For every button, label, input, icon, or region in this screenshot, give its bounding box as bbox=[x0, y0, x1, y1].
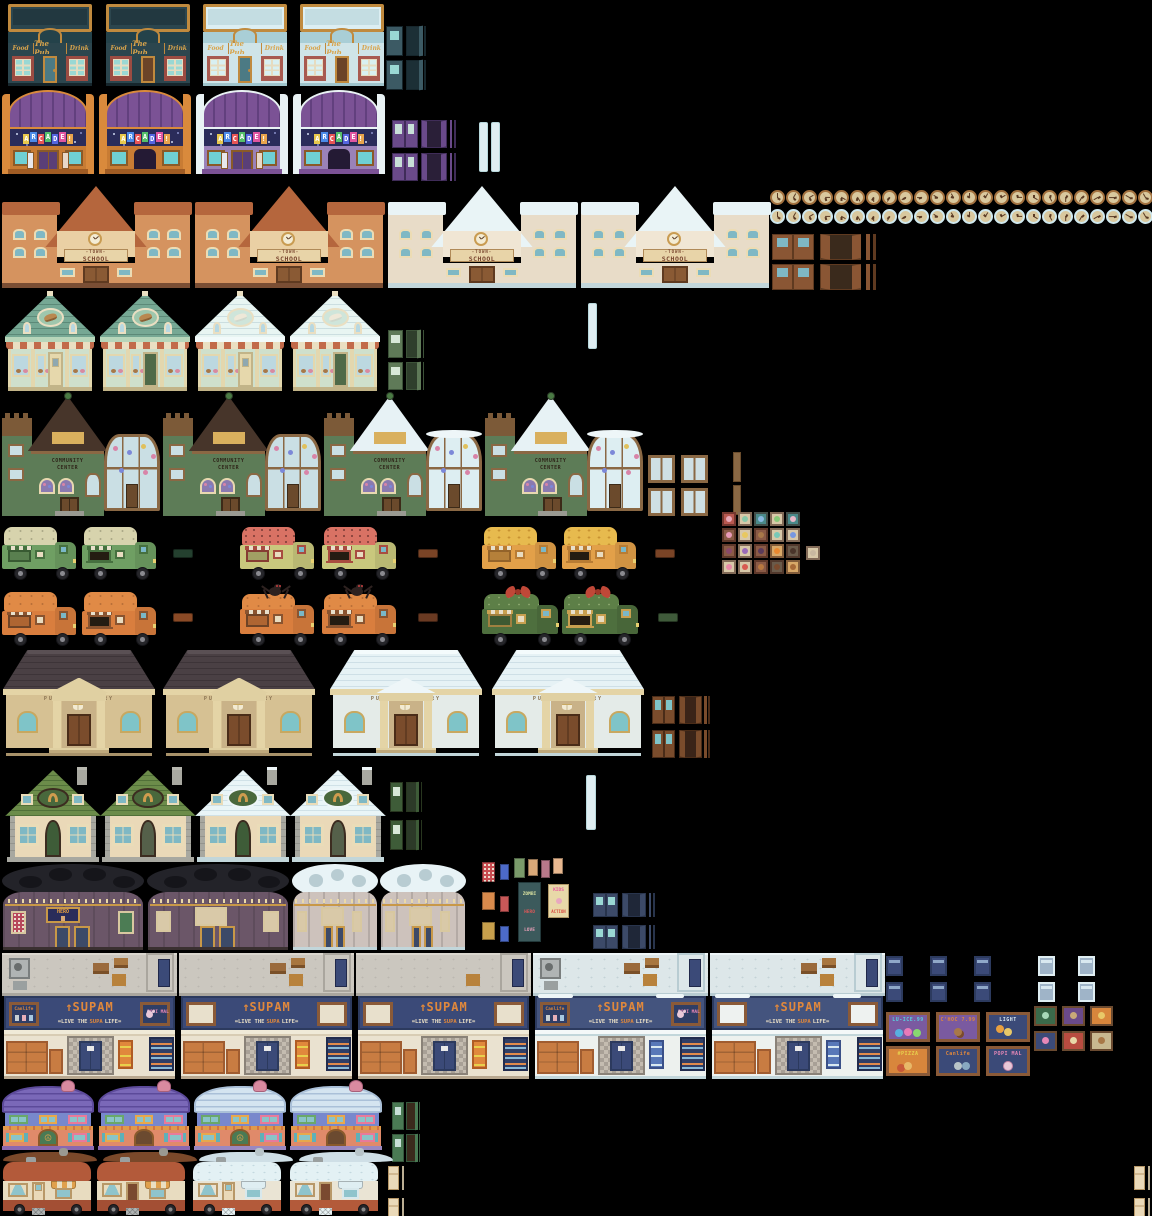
pub-sign-drink: Drink bbox=[164, 43, 190, 54]
slogan-pre: =LIVE THE bbox=[412, 1019, 442, 1025]
bakery-display-window bbox=[165, 354, 183, 378]
sliver-bar-sprite bbox=[733, 452, 741, 482]
bakery-display-window bbox=[12, 354, 30, 378]
door-closed bbox=[386, 60, 403, 90]
arcade-sign-text: ARCADE! bbox=[107, 132, 182, 144]
caravan-wheel bbox=[71, 1204, 82, 1215]
library-column bbox=[542, 701, 550, 748]
cc-greenhouse-door bbox=[609, 484, 621, 508]
bakery-pastries bbox=[111, 369, 116, 373]
cinema-door bbox=[324, 926, 333, 949]
doorset-bakery-sprite bbox=[388, 330, 424, 358]
clock-hour-hand bbox=[1146, 216, 1149, 218]
library-entablature bbox=[212, 693, 267, 700]
school-wing-window bbox=[553, 247, 566, 258]
truck-headlight bbox=[311, 559, 314, 563]
caravan-window bbox=[55, 1188, 72, 1199]
ranch-horseshoe-plaque bbox=[322, 788, 353, 808]
cc-tall-window bbox=[246, 473, 262, 497]
supam-autumn-sprite: ↑SUPAM=LIVE THESUPALIFE= bbox=[356, 953, 531, 1079]
clock-animation-frame bbox=[1074, 209, 1089, 224]
door-open bbox=[406, 782, 419, 812]
bakery-column bbox=[89, 349, 93, 387]
cc-sign-text: COMMUNITYCENTER bbox=[32, 456, 102, 473]
supam-crate bbox=[49, 1049, 63, 1074]
truck-bow-open-sprite bbox=[562, 586, 640, 646]
adposter-sprite: Canlife bbox=[936, 1046, 980, 1076]
school-wing-roof bbox=[520, 202, 578, 214]
clock-animation-frame bbox=[1138, 190, 1152, 205]
ad-poster-icon bbox=[1004, 1028, 1012, 1036]
sliver-snow-sprite bbox=[588, 303, 597, 349]
clock-animation-frame bbox=[786, 209, 801, 224]
cc-snow-cap bbox=[587, 430, 643, 438]
truck-spider-sprite bbox=[240, 586, 315, 646]
poster-text-action: ACTION bbox=[551, 909, 565, 914]
caravan-wheel bbox=[108, 1204, 119, 1215]
hippie-roof-dome bbox=[157, 1080, 171, 1092]
truck-rooftop bbox=[484, 527, 537, 546]
supam-sliding-door bbox=[610, 1041, 633, 1071]
cinema-door bbox=[200, 926, 216, 949]
truck-rooftop bbox=[84, 527, 137, 546]
cinema-empty-frame bbox=[297, 911, 306, 932]
door-sliver bbox=[1148, 1166, 1150, 1190]
cinema-base bbox=[381, 947, 465, 950]
caravan-window-curtains bbox=[8, 1183, 27, 1197]
arcade-letter: A bbox=[314, 134, 320, 144]
truck-headlight bbox=[636, 623, 639, 627]
movie-poster-kids-action: KIDSACTION bbox=[548, 884, 569, 918]
doorset-hippie-sprite bbox=[392, 1102, 420, 1130]
caravan-roof bbox=[193, 1162, 281, 1181]
door-pane bbox=[596, 929, 602, 937]
film-reel-hole bbox=[397, 874, 411, 886]
door-sprite bbox=[1134, 1166, 1145, 1190]
door-open bbox=[406, 820, 419, 850]
clock-animation-frame bbox=[866, 190, 881, 205]
hippie-shutter bbox=[120, 1133, 124, 1143]
arcade-base bbox=[202, 169, 281, 174]
cc-window-flowers bbox=[62, 483, 65, 486]
food-icon bbox=[758, 548, 764, 554]
double-door-open bbox=[622, 893, 647, 917]
truck-cab-window bbox=[539, 545, 548, 554]
cc-window-flowers bbox=[204, 483, 207, 486]
open-door-leaf bbox=[852, 264, 861, 289]
window-pane bbox=[47, 1117, 49, 1123]
cc-greenhouse bbox=[587, 434, 643, 511]
clock-animation-frame bbox=[802, 190, 817, 205]
pub-roof-panel bbox=[208, 9, 282, 25]
arcade-sign-panel: ARCADE! bbox=[10, 129, 85, 147]
truck-cab-window bbox=[619, 545, 628, 554]
cc-tower-brick bbox=[2, 418, 32, 436]
clock-animation-frame bbox=[882, 209, 897, 224]
school-lower-window bbox=[446, 268, 461, 277]
bakery-column bbox=[126, 349, 130, 387]
school-sign: -TOWN-SCHOOL bbox=[643, 249, 707, 262]
hippie-lower-window bbox=[201, 1133, 216, 1143]
school-wing bbox=[2, 213, 57, 283]
food-tile-berry-dark bbox=[754, 544, 768, 558]
pub-roof-panel bbox=[305, 9, 379, 25]
arcade-pillar-right bbox=[183, 94, 191, 174]
truck-wheel bbox=[334, 633, 347, 646]
double-door-closed bbox=[652, 730, 675, 758]
cinema-door bbox=[55, 926, 71, 949]
ranch-chimney bbox=[362, 767, 372, 785]
supam-vending-machines bbox=[857, 1037, 882, 1071]
window-pane bbox=[114, 1117, 116, 1123]
cinema-autumn-open-sprite: HERO bbox=[2, 864, 144, 950]
cinema-autumn-sprite bbox=[147, 864, 289, 950]
door-sprite bbox=[1134, 1198, 1145, 1216]
cc-gable bbox=[213, 432, 245, 444]
caravan-window-curtains bbox=[198, 1183, 217, 1197]
ranch-base bbox=[102, 857, 194, 862]
bakery-winter-sprite bbox=[195, 293, 285, 391]
supam-slogan: =LIVE THESUPALIFE= bbox=[745, 1016, 850, 1027]
cinema-empty-frame bbox=[409, 907, 431, 926]
school-wing-roof bbox=[713, 202, 771, 214]
clock-animation-frame bbox=[834, 209, 849, 224]
supam-poster-popimal bbox=[848, 1002, 878, 1026]
doorset-caravan-sprite bbox=[388, 1166, 404, 1190]
arcade-pillar-right bbox=[280, 94, 288, 174]
cc-window-sprite bbox=[648, 455, 675, 483]
supam-base bbox=[358, 1076, 530, 1079]
supam-window-sprite bbox=[930, 956, 947, 976]
clock-hour-hand bbox=[841, 217, 843, 220]
double-door-closed bbox=[392, 120, 418, 148]
caravan-autumn-open-sprite bbox=[97, 1162, 185, 1215]
arcade-autumn-open-sprite: ARCADE! bbox=[99, 90, 191, 174]
arcade-sign-panel: ARCADE! bbox=[301, 129, 376, 147]
door-pane bbox=[408, 124, 415, 134]
supam-poster-canlife bbox=[186, 1002, 216, 1026]
door-sliver bbox=[423, 362, 424, 390]
pub-brick-bay bbox=[207, 56, 229, 81]
bakery-awning bbox=[196, 342, 284, 349]
cc-greenhouse bbox=[426, 434, 482, 511]
library-ridge bbox=[516, 650, 619, 654]
food-tile-candy-cane bbox=[738, 560, 752, 574]
caravan-door-window bbox=[225, 1184, 232, 1190]
food-icon bbox=[774, 516, 780, 522]
supam-crate-stack bbox=[714, 1041, 756, 1074]
school-lower-window bbox=[253, 268, 268, 277]
library-open-book-emblem bbox=[233, 704, 243, 710]
window-pane bbox=[335, 1117, 337, 1123]
ranch-chimney bbox=[172, 767, 182, 785]
bakery-finial bbox=[142, 291, 147, 296]
clock-animation-frame bbox=[930, 190, 945, 205]
door-sliver bbox=[653, 893, 655, 917]
door-pane bbox=[393, 787, 400, 797]
door-pane bbox=[777, 238, 788, 247]
seasonal-divider-bar bbox=[658, 613, 678, 622]
school-wing-window bbox=[227, 247, 240, 258]
hippie-door: ☮ bbox=[230, 1129, 250, 1146]
door-pane bbox=[596, 897, 602, 905]
bakery-gable-window bbox=[164, 322, 172, 334]
school-wing bbox=[135, 213, 190, 283]
door-split bbox=[605, 926, 607, 948]
mound-rock bbox=[255, 1148, 264, 1156]
open-door-leaf bbox=[416, 782, 419, 813]
supam-crate-stack bbox=[6, 1041, 48, 1074]
supam-base bbox=[712, 1076, 884, 1079]
food-icon bbox=[742, 516, 748, 522]
miniposters-sprite bbox=[1034, 1006, 1114, 1052]
canlife-text: Canlife bbox=[12, 1006, 36, 1014]
dirt-mound bbox=[3, 1152, 97, 1162]
food-tile-pudding bbox=[770, 560, 784, 574]
clock-animation-frame bbox=[1122, 209, 1137, 224]
clock-animation-frame bbox=[1106, 209, 1121, 224]
ranch-winter-sprite bbox=[197, 762, 289, 862]
door-split bbox=[605, 894, 607, 916]
ranch-door bbox=[235, 820, 252, 857]
school-winter-sprite: -TOWN-SCHOOL bbox=[388, 186, 576, 288]
door-sliver bbox=[704, 696, 706, 724]
bakery-autumn-sprite bbox=[5, 293, 95, 391]
pub-sign-food: Food bbox=[106, 43, 131, 54]
ranch-corner-stones bbox=[281, 816, 287, 857]
truck-wheel bbox=[294, 567, 307, 580]
pub-winter-open-sprite: FoodThe PubDrink bbox=[300, 4, 384, 86]
doorset-library-sprite bbox=[652, 696, 710, 724]
supam-arrow-icon: ↑ bbox=[773, 1000, 780, 1014]
clock-animation-frame bbox=[978, 209, 993, 224]
open-door-leaf bbox=[416, 820, 419, 851]
truck-wheel bbox=[574, 633, 587, 646]
window-pane bbox=[365, 1117, 367, 1123]
cinema-trim bbox=[382, 904, 465, 906]
caravan-winter-open-sprite bbox=[290, 1162, 378, 1215]
adposter-sprite: LU-ICE.99 bbox=[886, 1012, 930, 1042]
movie-poster-popcorn bbox=[482, 862, 495, 882]
posterset-sprite: ZOMBIHEROLOVEKIDSACTION bbox=[482, 856, 582, 948]
movie-poster-burger bbox=[482, 922, 495, 940]
school-wing-window bbox=[13, 247, 26, 258]
cc-greenhouse-door bbox=[287, 484, 299, 508]
window-pane bbox=[889, 986, 899, 989]
pub-window bbox=[70, 60, 83, 74]
food-tile-pretzel bbox=[786, 560, 800, 574]
hippie-lower-window bbox=[168, 1133, 183, 1143]
truck-melon-open-sprite bbox=[322, 524, 397, 580]
pub-brick-bay bbox=[164, 56, 186, 81]
arcade-base bbox=[299, 169, 378, 174]
supam-roof-crate bbox=[643, 974, 657, 985]
door-sliver bbox=[424, 26, 426, 56]
truck-headlight bbox=[153, 559, 156, 563]
supam-stair-door bbox=[512, 959, 523, 987]
ad-poster-text: POPI MAL bbox=[989, 1050, 1027, 1059]
pub-door bbox=[335, 56, 348, 82]
cc-greenhouse-flowers bbox=[113, 446, 118, 451]
door-pane bbox=[408, 157, 415, 167]
bakery-pastries bbox=[38, 369, 43, 373]
doorset-bakery-sprite bbox=[388, 362, 424, 390]
library-window bbox=[177, 711, 198, 732]
cc-tower-window bbox=[330, 444, 346, 457]
truck-cab-window bbox=[541, 609, 550, 619]
supam-ac-duct bbox=[13, 981, 27, 990]
door-sliver bbox=[454, 153, 456, 181]
pub-base bbox=[203, 83, 287, 86]
mini-ad-poster bbox=[1034, 1006, 1057, 1026]
food-tile-cinnamon-roll bbox=[754, 560, 768, 574]
door-pane bbox=[608, 897, 614, 905]
door-closed bbox=[392, 1102, 404, 1130]
poster-text-zombi: ZOMBI bbox=[523, 892, 537, 897]
bakery-column bbox=[31, 349, 35, 387]
door-sliver bbox=[873, 234, 876, 260]
clock-animation-frame bbox=[898, 209, 913, 224]
open-door-leaf bbox=[640, 926, 645, 949]
school-sign-top: -TOWN- bbox=[472, 249, 492, 254]
clock-animation-frame bbox=[770, 190, 785, 205]
cc-arched-window bbox=[522, 478, 538, 495]
supam-crate bbox=[226, 1049, 240, 1074]
truck-cab-window bbox=[59, 545, 68, 554]
truck-rooftop bbox=[564, 527, 617, 546]
ranch-window bbox=[67, 824, 89, 846]
library-open-book-emblem bbox=[400, 704, 410, 710]
door-pane bbox=[655, 734, 661, 744]
school-wing-window bbox=[533, 247, 546, 258]
food-icon bbox=[790, 564, 796, 570]
bakery-logo-oval bbox=[37, 308, 64, 328]
adposter-sprite: C'HOC 7.99 bbox=[936, 1012, 980, 1042]
door-sliver bbox=[421, 820, 422, 850]
mini-ad-poster bbox=[1062, 1031, 1085, 1051]
sprite-sheet-canvas: FoodThe PubDrinkFoodThe PubDrinkFoodThe … bbox=[0, 0, 1152, 1216]
supam-slogan: =LIVE THESUPALIFE= bbox=[214, 1016, 319, 1027]
snow-cap bbox=[715, 994, 750, 998]
school-wing-window bbox=[746, 229, 759, 240]
open-door-leaf bbox=[419, 25, 423, 56]
slogan-pre: =LIVE THE bbox=[589, 1019, 619, 1025]
truck-spider-decoration bbox=[263, 584, 287, 598]
open-door-leaf bbox=[422, 121, 427, 148]
truck-menu-board bbox=[595, 550, 605, 560]
pub-sign-band: FoodThe PubDrink bbox=[300, 43, 384, 54]
clock-animation-frame bbox=[1122, 190, 1137, 205]
arcade-letter: D bbox=[149, 134, 155, 144]
slogan-pre: =LIVE THE bbox=[766, 1019, 796, 1025]
seasonal-divider-bar bbox=[418, 549, 438, 558]
school-wing-roof bbox=[327, 202, 385, 214]
food-tile-egg-blue bbox=[754, 512, 768, 526]
truck-wheel bbox=[494, 567, 507, 580]
library-ridge bbox=[187, 650, 290, 654]
door-sliver bbox=[649, 893, 651, 917]
mini-ad-icon bbox=[1042, 1037, 1049, 1044]
hippie-upper-window bbox=[9, 1115, 27, 1125]
bakery-gable-window bbox=[259, 322, 267, 334]
cinema-poster-popcorn bbox=[11, 911, 27, 933]
truck-green-sprite bbox=[2, 524, 77, 580]
slogan-supa: SUPA bbox=[621, 1019, 634, 1025]
film-reel-hole bbox=[352, 875, 366, 887]
clock-hour-hand bbox=[1065, 214, 1068, 217]
food-icon bbox=[774, 564, 780, 570]
supam-ac-duct bbox=[544, 981, 558, 990]
pub-sign-thepub: The Pub bbox=[228, 43, 261, 54]
supam-name-text: SUPAM bbox=[427, 1000, 468, 1014]
door-sliver bbox=[873, 264, 876, 290]
supam-sale-poster bbox=[649, 1040, 665, 1069]
hippie-door: ☮ bbox=[38, 1129, 58, 1146]
snow-cap bbox=[538, 994, 573, 998]
school-wing-window bbox=[746, 247, 759, 258]
supam-arrow-icon: ↑ bbox=[242, 1000, 249, 1014]
truck-wheel bbox=[136, 567, 149, 580]
door-closed bbox=[388, 330, 403, 358]
windowset-cc-sprite bbox=[648, 488, 708, 516]
pub-winter-sprite: FoodThe PubDrink bbox=[203, 4, 287, 86]
supam-window-sprite-snow bbox=[1038, 982, 1055, 1002]
snow-door-sliver bbox=[491, 122, 500, 172]
clock-animation-frame bbox=[898, 190, 913, 205]
truck-serving-window-closed bbox=[488, 614, 511, 627]
school-wing-window bbox=[726, 247, 739, 258]
clock-animation-frame bbox=[1010, 209, 1025, 224]
truck-wheel bbox=[538, 633, 551, 646]
pub-brick-bay bbox=[261, 56, 283, 81]
clock-animation-frame bbox=[818, 190, 833, 205]
cc-arched-window bbox=[541, 478, 557, 495]
cc-arched-window bbox=[39, 478, 55, 495]
clock-animation-frame bbox=[962, 190, 977, 205]
school-wing-window bbox=[34, 229, 47, 240]
arcade-awning bbox=[299, 90, 378, 129]
arcade-letter: D bbox=[52, 134, 58, 144]
double-door-closed bbox=[772, 264, 814, 290]
library-ridge bbox=[27, 650, 130, 654]
clock-hour-hand bbox=[793, 216, 796, 219]
truck-spider-decoration bbox=[345, 584, 369, 598]
truck-rooftop bbox=[4, 592, 57, 611]
truck-counter bbox=[86, 561, 113, 563]
double-door-closed bbox=[593, 893, 618, 917]
adposter-sprite: #PIZZA bbox=[886, 1046, 930, 1076]
hippie-shutter bbox=[24, 1133, 28, 1143]
truck-wheel bbox=[376, 633, 389, 646]
film-reel-hole bbox=[164, 876, 187, 888]
truck-wheel bbox=[616, 567, 629, 580]
hippie-lower-window bbox=[297, 1133, 312, 1143]
school-lower-window bbox=[639, 268, 654, 277]
supam-roof-crate bbox=[289, 974, 303, 985]
community-autumn-sprite: COMMUNITYCENTER bbox=[163, 396, 323, 516]
ranch-gable-window bbox=[21, 794, 33, 805]
cc-greenhouse-flowers bbox=[596, 446, 601, 451]
ranch-autumn-open-sprite bbox=[102, 762, 194, 862]
adposter-sprite: POPI MAL bbox=[986, 1046, 1030, 1076]
school-wing-window bbox=[613, 247, 626, 258]
caravan-autumn-sprite bbox=[3, 1162, 91, 1215]
cc-battlement bbox=[166, 413, 171, 418]
hippie-upper-window bbox=[39, 1115, 57, 1125]
window-pane bbox=[1041, 960, 1051, 963]
supam-roof-table bbox=[291, 958, 305, 968]
pub-window-frame bbox=[264, 59, 281, 76]
